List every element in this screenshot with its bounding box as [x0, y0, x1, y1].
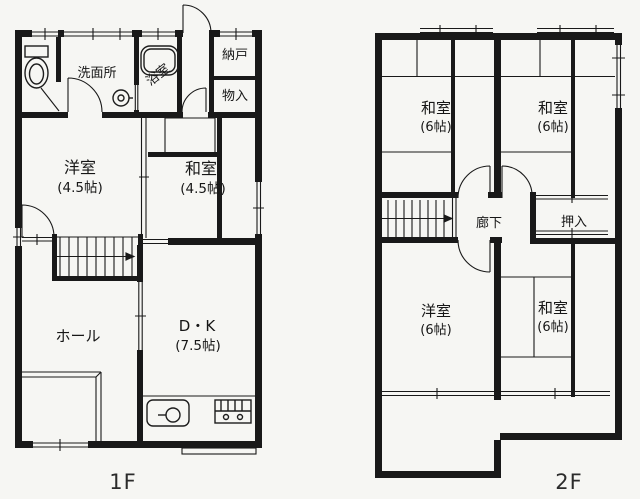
floorplan-1f: 洗面所 浴室 納戸 物入 洋室 (4.5帖) 和室 (4.5帖) ホール D・K…	[13, 5, 264, 494]
japanese-room-ne-door-arc	[502, 166, 532, 198]
room-size-japanese-room-nw: (6帖)	[420, 120, 451, 135]
f2-walls	[375, 33, 622, 478]
room-label-hall: ホール	[55, 327, 100, 345]
porch-step	[182, 448, 256, 454]
stairs-2f	[382, 200, 452, 237]
room-label-washroom: 洗面所	[77, 66, 116, 81]
room-label-oshiire: 押入	[561, 215, 587, 230]
washroom-door-arc	[68, 78, 102, 112]
western-room-door-arc	[22, 205, 54, 237]
room-label-western-room-1f: 洋室	[64, 158, 96, 177]
room-size-western-room-1f: (4.5帖)	[57, 180, 103, 196]
room-label-western-room-2f: 洋室	[421, 302, 451, 320]
toilet-icon	[25, 46, 48, 88]
room-label-storeroom: 納戸	[222, 48, 248, 63]
floorplan-page: 洗面所 浴室 納戸 物入 洋室 (4.5帖) 和室 (4.5帖) ホール D・K…	[0, 0, 640, 499]
room-label-japanese-room-1f: 和室	[185, 159, 217, 178]
japanese-room-nw-door-arc	[458, 166, 490, 198]
stairs-1f	[57, 237, 134, 276]
stove-icon	[215, 400, 251, 423]
room-label-closet: 物入	[222, 89, 248, 104]
room-label-japanese-room-s: 和室	[538, 299, 568, 317]
f2-windows	[382, 25, 625, 399]
washbasin-icon	[113, 90, 133, 106]
room-label-japanese-room-nw: 和室	[421, 99, 451, 117]
room-label-corridor: 廊下	[476, 215, 502, 231]
room-size-japanese-room-1f: (4.5帖)	[180, 181, 226, 197]
floor-label-1f: 1F	[109, 470, 136, 494]
floor-label-2f: 2F	[555, 470, 582, 494]
room-size-japanese-room-s: (6帖)	[537, 320, 568, 335]
entrance-door-arc	[183, 5, 211, 33]
room-size-japanese-room-ne: (6帖)	[537, 120, 568, 135]
kitchen-sink-icon	[147, 400, 189, 426]
room-size-dk: (7.5帖)	[175, 338, 221, 354]
room-label-bathroom: 浴室	[143, 61, 173, 90]
f1-doors	[22, 5, 211, 237]
floorplan-2f: 和室 (6帖) 和室 (6帖) 廊下 押入 洋室 (6帖) 和室 (6帖) 2F	[375, 25, 625, 494]
floorplan-drawing: 洗面所 浴室 納戸 物入 洋室 (4.5帖) 和室 (4.5帖) ホール D・K…	[0, 0, 640, 499]
genkan-door-arc	[182, 88, 206, 112]
western-room-2f-door-arc	[458, 240, 490, 272]
room-label-dk: D・K	[179, 317, 217, 335]
room-size-western-room-2f: (6帖)	[420, 323, 451, 338]
room-label-japanese-room-ne: 和室	[538, 99, 568, 117]
